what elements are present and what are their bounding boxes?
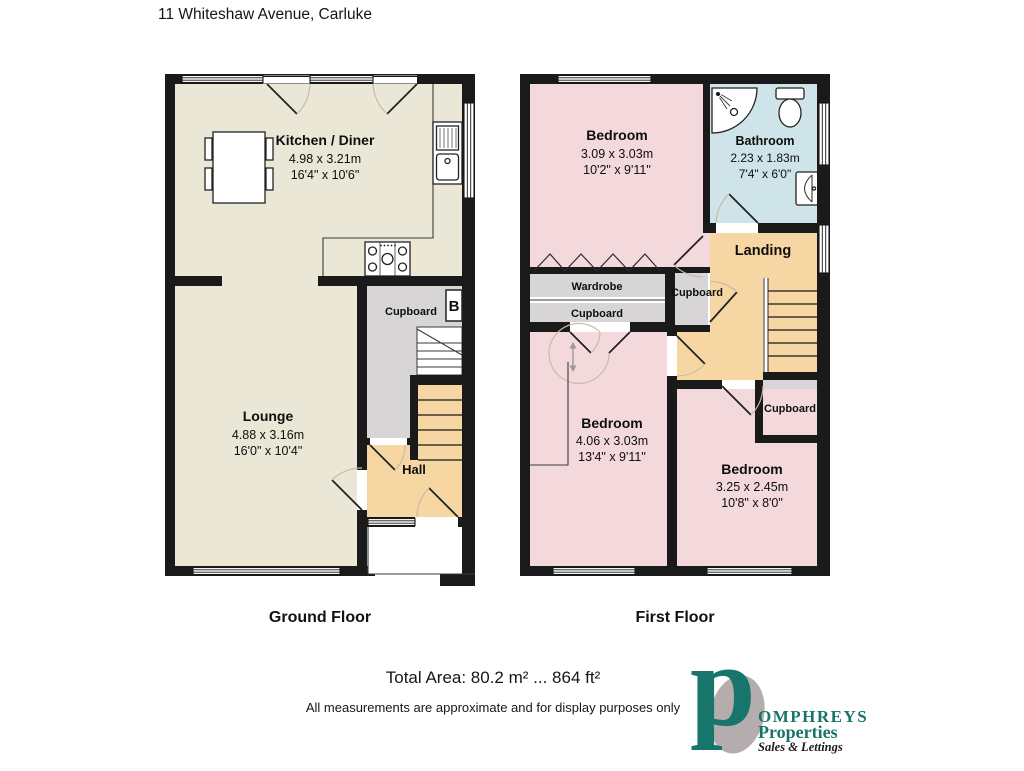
understairs (417, 327, 462, 375)
first-floor-plan: Bedroom 3.09 x 3.03m 10'2" x 9'11" Bathr… (520, 74, 830, 586)
bedroom2-name: Bedroom (581, 415, 642, 431)
bedroom3-metric: 3.25 x 2.45m (716, 480, 788, 494)
hob (365, 242, 410, 276)
cupboard2-floor (675, 273, 708, 325)
window (193, 568, 340, 575)
kitchen-name: Kitchen / Diner (276, 132, 375, 148)
window (819, 103, 829, 165)
bedroom2-imperial: 13'4" x 9'11" (578, 450, 646, 464)
bathroom-name: Bathroom (735, 134, 794, 148)
kitchen-metric: 4.98 x 3.21m (289, 152, 361, 166)
window (464, 103, 474, 198)
hall-label: Hall (402, 462, 426, 477)
bedroom3-imperial: 10'8" x 8'0" (721, 496, 783, 510)
bathroom-imperial: 7'4" x 6'0" (739, 167, 791, 181)
lounge-metric: 4.88 x 3.16m (232, 428, 304, 442)
lounge-floor (175, 286, 357, 566)
logo-tagline: Sales & Lettings (758, 740, 868, 754)
logo-properties: Properties (758, 724, 868, 740)
cupboard-a-label: Cupboard (571, 308, 623, 320)
agency-logo: p OMPHREYS Properties Sales & Lettings (696, 666, 906, 771)
porch (368, 527, 475, 574)
cupboard-label: Cupboard (385, 306, 437, 318)
logo-text: OMPHREYS Properties Sales & Lettings (758, 709, 868, 754)
cupboard-c-label: Cupboard (764, 403, 816, 415)
ground-floor-caption: Ground Floor (165, 609, 475, 627)
bedroom1-imperial: 10'2" x 9'11" (583, 163, 651, 177)
wardrobe-label: Wardrobe (572, 281, 623, 293)
page-title: 11 Whiteshaw Avenue, Carluke (158, 6, 372, 24)
boiler-badge: B (446, 290, 462, 321)
landing-label: Landing (735, 243, 791, 259)
window (182, 76, 263, 83)
first-floor-caption: First Floor (520, 609, 830, 627)
bedroom2-metric: 4.06 x 3.03m (576, 434, 648, 448)
boiler-label: B (449, 298, 460, 315)
basin (796, 172, 818, 205)
storage-divider (530, 297, 665, 303)
bedroom1-metric: 3.09 x 3.03m (581, 147, 653, 161)
window (310, 76, 373, 83)
window (558, 76, 651, 83)
window (707, 568, 792, 575)
kitchen-imperial: 16'4" x 10'6" (291, 168, 360, 182)
window (368, 519, 415, 526)
cupboard-floor-lower (367, 375, 410, 445)
kitchen-sink (433, 122, 462, 184)
lounge-name: Lounge (243, 408, 294, 424)
cupboard-b-label: Cupboard (671, 287, 723, 299)
bathroom-metric: 2.23 x 1.83m (730, 151, 799, 165)
bedroom3-floor (677, 389, 818, 566)
lounge-imperial: 16'0" x 10'4" (234, 444, 303, 458)
bedroom2-floor (530, 332, 667, 566)
window (819, 225, 829, 273)
dining-table (205, 132, 273, 203)
window (553, 568, 635, 575)
ground-floor-plan: B Kitchen / Diner 4.98 x 3.21m 16'4" x 1… (165, 74, 475, 586)
first-stairs-floor (768, 278, 818, 372)
logo-initial: p (690, 627, 756, 745)
bedroom3-name: Bedroom (721, 461, 782, 477)
bedroom1-name: Bedroom (586, 127, 647, 143)
